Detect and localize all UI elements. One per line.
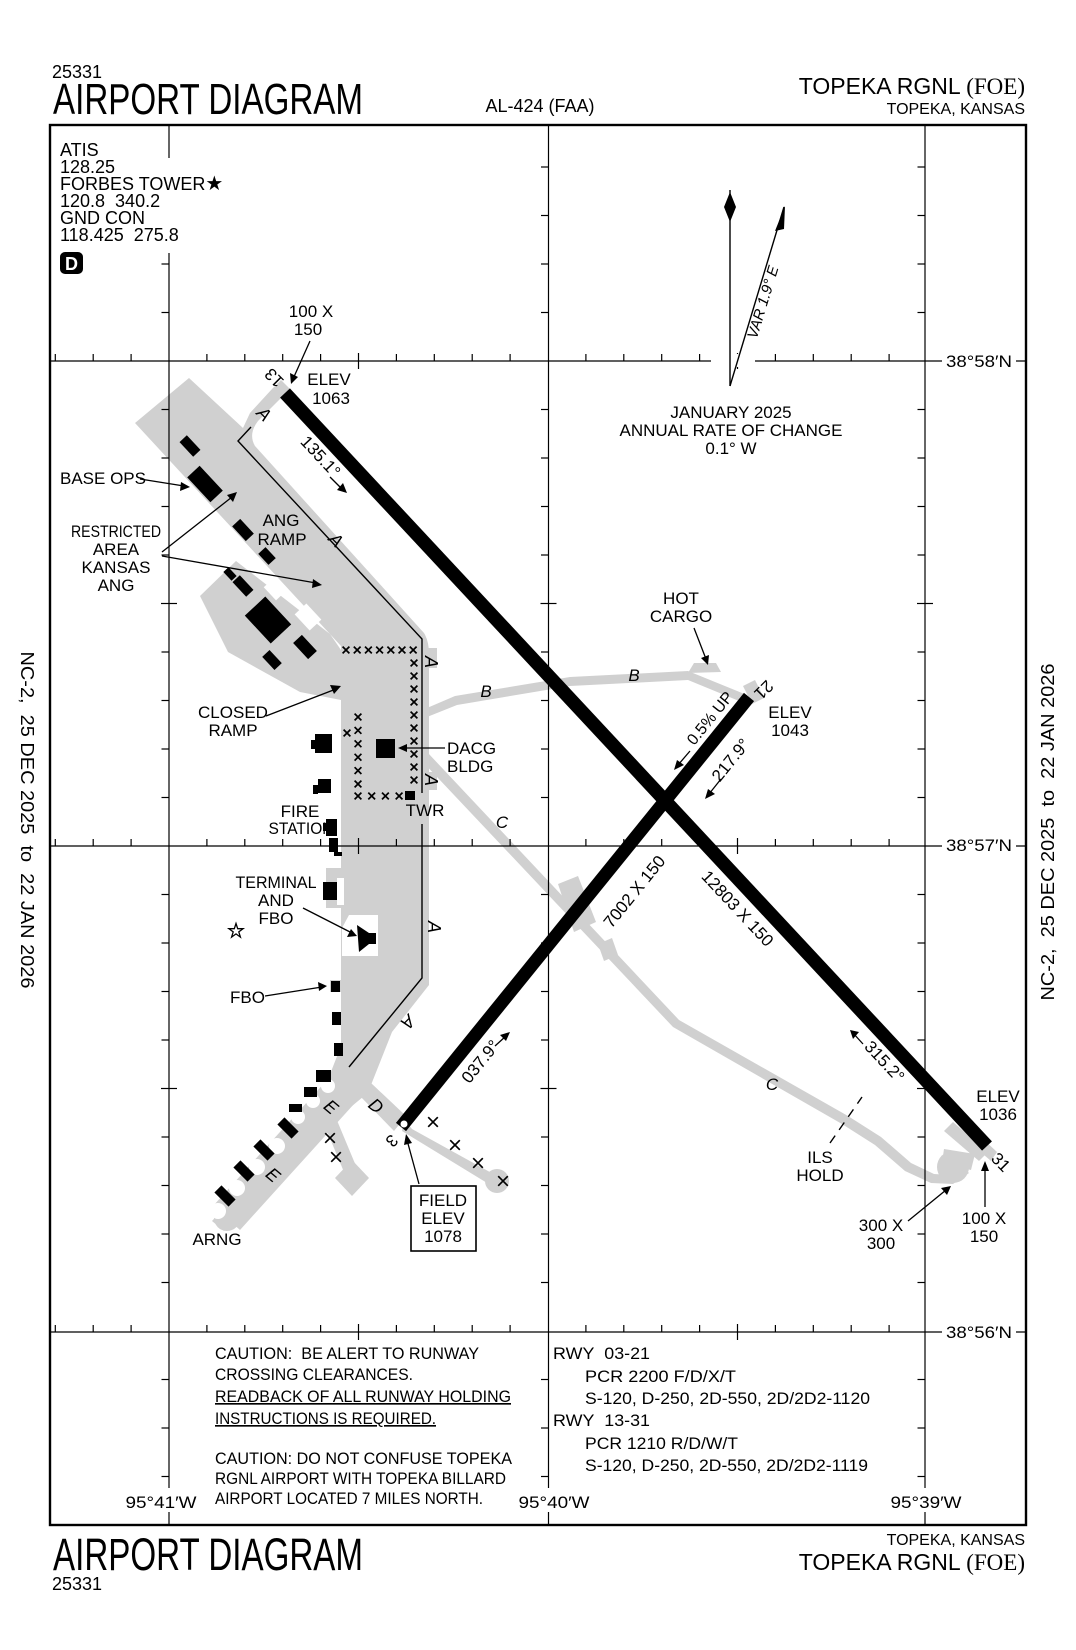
svg-text:TWR: TWR [406,801,445,820]
svg-text:ANG: ANG [98,576,135,595]
svg-text:NC-2, 25 DEC 2025 to 22 JAN: NC-2, 25 DEC 2025 to 22 JAN 2026 [17,652,37,989]
svg-text:RWY 03-21: RWY 03-21 [553,1345,650,1363]
svg-text:B: B [628,666,639,685]
svg-text:PCR 2200 F/D/X/T: PCR 2200 F/D/X/T [585,1368,736,1386]
svg-text:ELEV: ELEV [421,1209,465,1228]
svg-text:AND: AND [258,891,294,910]
svg-text:CAUTION: DO NOT CONFUSE TOPEKA: CAUTION: DO NOT CONFUSE TOPEKA [215,1450,512,1468]
svg-text:A: A [421,773,441,786]
svg-text:RESTRICTED: RESTRICTED [71,522,161,541]
svg-text:95°40′W: 95°40′W [519,1493,590,1512]
svg-text:D: D [65,254,78,274]
svg-text:READBACK OF ALL RUNWAY HOLDING: READBACK OF ALL RUNWAY HOLDING [215,1388,511,1406]
svg-text:JANUARY 2025: JANUARY 2025 [670,403,791,422]
svg-text:A: A [421,655,441,668]
svg-text:300: 300 [867,1234,895,1253]
svg-text:AL-424 (FAA): AL-424 (FAA) [485,96,594,116]
svg-text:1078: 1078 [424,1227,462,1246]
svg-text:TOPEKA RGNL (FOE): TOPEKA RGNL (FOE) [799,1549,1025,1575]
svg-text:RGNL AIRPORT WITH TOPEKA BILLA: RGNL AIRPORT WITH TOPEKA BILLARD [215,1470,506,1488]
svg-text:25331: 25331 [52,1574,102,1594]
svg-text:C: C [496,813,509,832]
svg-text:PCR 1210 R/D/W/T: PCR 1210 R/D/W/T [585,1435,738,1453]
svg-text:1043: 1043 [771,721,809,740]
svg-text:38°56′N: 38°56′N [946,1323,1012,1342]
svg-text:118.425 275.8: 118.425 275.8 [60,225,179,245]
svg-text:ANG: ANG [263,511,300,530]
svg-text:100 X: 100 X [289,302,333,321]
svg-text:AIRPORT DIAGRAM: AIRPORT DIAGRAM [53,1529,363,1580]
svg-text:0.1° W: 0.1° W [705,439,756,458]
svg-text:150: 150 [294,320,322,339]
svg-text:ARNG: ARNG [192,1230,241,1249]
svg-text:95°39′W: 95°39′W [891,1493,962,1512]
svg-text:1036: 1036 [979,1105,1017,1124]
svg-text:S-120, D-250, 2D-550, 2D/2D2-1: S-120, D-250, 2D-550, 2D/2D2-1119 [585,1457,868,1475]
svg-text:B: B [480,682,491,701]
svg-text:AIRPORT LOCATED 7 MILES NORTH.: AIRPORT LOCATED 7 MILES NORTH. [215,1490,483,1508]
svg-text:ELEV: ELEV [768,703,812,722]
svg-text:KANSAS: KANSAS [82,558,151,577]
svg-text:S-120, D-250, 2D-550, 2D/2D2-1: S-120, D-250, 2D-550, 2D/2D2-1120 [585,1390,870,1408]
svg-text:DACG: DACG [447,739,496,758]
svg-text:BLDG: BLDG [447,757,493,776]
svg-text:TERMINAL: TERMINAL [236,873,317,892]
svg-text:AREA: AREA [93,540,140,559]
svg-text:NC-2, 25 DEC 2025 to 22 JAN: NC-2, 25 DEC 2025 to 22 JAN 2026 [1038,664,1058,1001]
svg-text:ELEV: ELEV [307,370,351,389]
svg-text:RAMP: RAMP [257,530,306,549]
svg-text:TOPEKA, KANSAS: TOPEKA, KANSAS [887,101,1025,118]
svg-text:C: C [766,1075,779,1094]
svg-text:95°41′W: 95°41′W [126,1493,197,1512]
svg-text:ILS: ILS [807,1148,833,1167]
svg-text:RWY 13-31: RWY 13-31 [553,1412,650,1430]
svg-text:STATION: STATION [269,819,334,838]
svg-text:CLOSED: CLOSED [198,703,268,722]
svg-text:38°57′N: 38°57′N [946,836,1012,855]
svg-text:ELEV: ELEV [976,1087,1020,1106]
svg-text:FBO: FBO [230,988,265,1007]
svg-text:RAMP: RAMP [208,721,257,740]
svg-text:CAUTION: BE ALERT TO RUNWAY: CAUTION: BE ALERT TO RUNWAY [215,1345,479,1363]
svg-text:1063: 1063 [312,389,350,408]
svg-text:BASE OPS: BASE OPS [60,469,146,488]
svg-text:150: 150 [970,1227,998,1246]
svg-text:FBO: FBO [259,909,294,928]
svg-text:CROSSING CLEARANCES.: CROSSING CLEARANCES. [215,1366,413,1384]
svg-text:ANNUAL RATE OF CHANGE: ANNUAL RATE OF CHANGE [620,421,843,440]
svg-text:A: A [424,920,444,933]
svg-text:FIELD: FIELD [419,1191,467,1210]
svg-text:TOPEKA, KANSAS: TOPEKA, KANSAS [887,1532,1025,1549]
svg-text:38°58′N: 38°58′N [946,352,1012,371]
svg-text:AIRPORT DIAGRAM: AIRPORT DIAGRAM [53,75,363,124]
svg-text:TOPEKA RGNL (FOE): TOPEKA RGNL (FOE) [799,73,1025,99]
svg-text:HOT: HOT [663,589,699,608]
svg-text:300 X: 300 X [859,1216,903,1235]
svg-text:HOLD: HOLD [796,1166,843,1185]
svg-text:100 X: 100 X [962,1209,1006,1228]
svg-text:CARGO: CARGO [650,607,712,626]
svg-text:INSTRUCTIONS IS REQUIRED.: INSTRUCTIONS IS REQUIRED. [215,1410,436,1428]
